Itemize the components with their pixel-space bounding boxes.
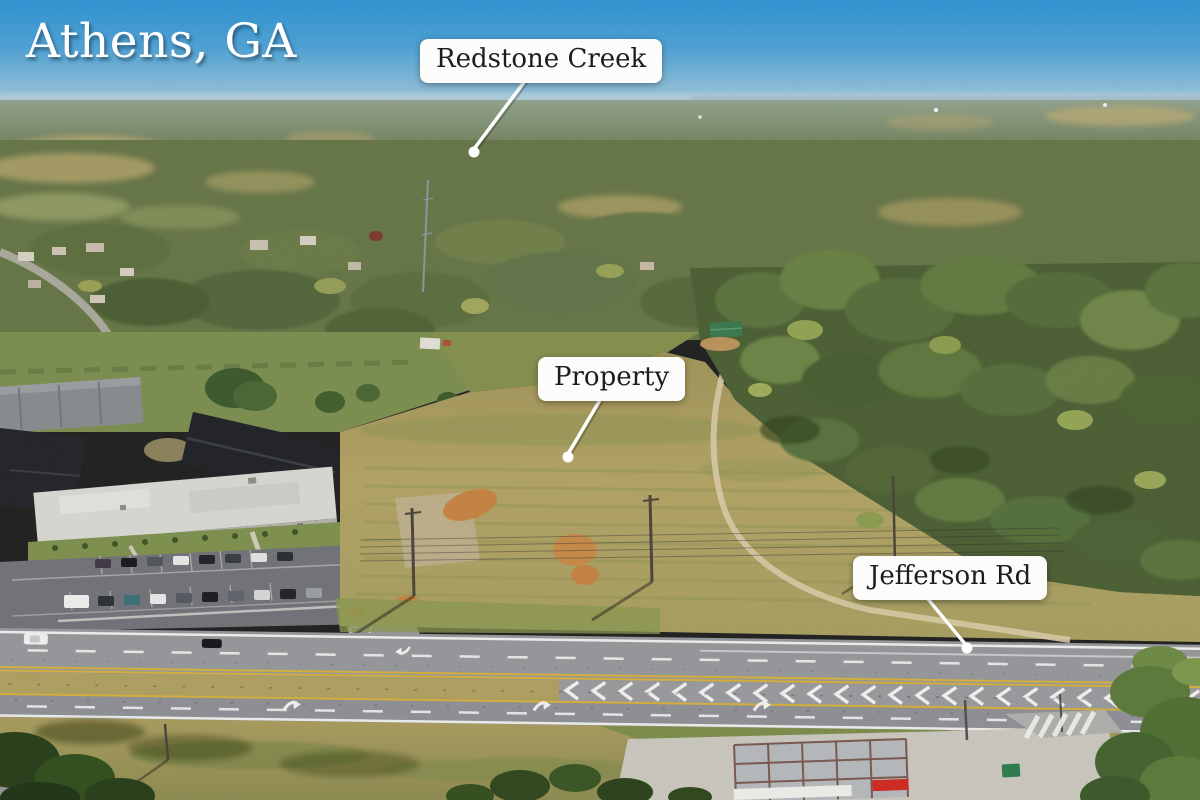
leader-dot-redstone-creek — [469, 147, 480, 158]
scene: Athens, GA Redstone Creek Property Jeffe… — [0, 0, 1200, 800]
callout-redstone-creek-label: Redstone Creek — [436, 44, 646, 74]
callout-redstone-creek: Redstone Creek — [420, 39, 662, 83]
leader-dot-property — [563, 452, 574, 463]
leader-dot-jefferson-rd — [962, 643, 973, 654]
callout-jefferson-rd: Jefferson Rd — [853, 556, 1047, 600]
callout-property-label: Property — [554, 362, 669, 392]
callout-property: Property — [538, 357, 685, 401]
callout-jefferson-rd-label: Jefferson Rd — [869, 561, 1031, 591]
location-title: Athens, GA — [26, 14, 297, 69]
